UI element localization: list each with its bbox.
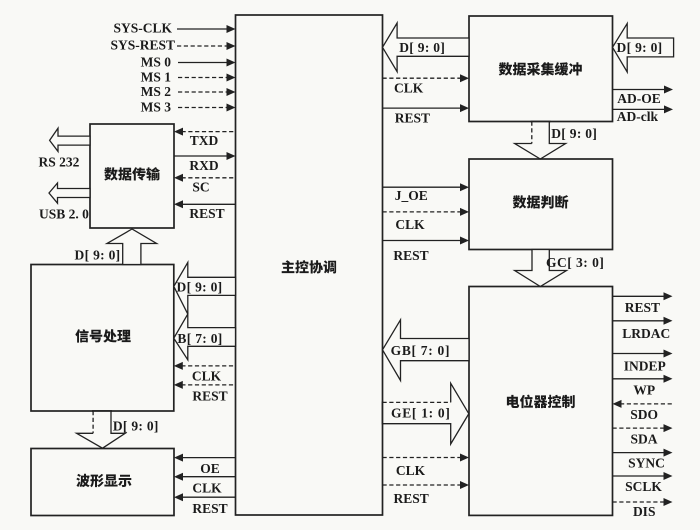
- svg-text:SYS-REST: SYS-REST: [110, 38, 175, 53]
- svg-text:MS 3: MS 3: [141, 100, 172, 115]
- svg-text:GB[ 7: 0]: GB[ 7: 0]: [391, 343, 451, 358]
- svg-text:WP: WP: [633, 383, 655, 398]
- svg-text:SDA: SDA: [630, 432, 657, 447]
- svg-text:J_OE: J_OE: [395, 188, 428, 203]
- svg-text:CLK: CLK: [396, 463, 426, 478]
- svg-text:D[ 9: 0]: D[ 9: 0]: [177, 280, 223, 295]
- svg-text:INDEP: INDEP: [624, 359, 666, 374]
- svg-text:CLK: CLK: [192, 369, 222, 384]
- svg-text:SYS-CLK: SYS-CLK: [113, 21, 172, 36]
- svg-text:REST: REST: [192, 389, 227, 404]
- svg-text:D[ 9: 0]: D[ 9: 0]: [75, 248, 121, 263]
- svg-text:REST: REST: [625, 300, 660, 315]
- svg-text:MS 2: MS 2: [141, 84, 172, 99]
- svg-text:GE[ 1: 0]: GE[ 1: 0]: [391, 406, 451, 421]
- svg-text:D[ 9: 0]: D[ 9: 0]: [399, 40, 445, 55]
- svg-text:D[ 9: 0]: D[ 9: 0]: [617, 40, 663, 55]
- svg-text:DIS: DIS: [633, 504, 656, 519]
- svg-text:CLK: CLK: [192, 481, 222, 496]
- svg-text:OE: OE: [200, 461, 220, 476]
- svg-text:TXD: TXD: [190, 133, 219, 148]
- svg-text:REST: REST: [189, 206, 224, 221]
- svg-text:B[ 7: 0]: B[ 7: 0]: [177, 331, 222, 346]
- svg-text:SDO: SDO: [630, 407, 658, 422]
- svg-text:AD-clk: AD-clk: [617, 109, 659, 124]
- svg-text:RXD: RXD: [189, 158, 218, 173]
- svg-text:D[ 9: 0]: D[ 9: 0]: [551, 126, 597, 141]
- svg-text:SCLK: SCLK: [625, 479, 662, 494]
- svg-text:D[ 9: 0]: D[ 9: 0]: [113, 418, 159, 433]
- svg-text:MS 0: MS 0: [141, 55, 172, 70]
- svg-text:CLK: CLK: [395, 217, 425, 232]
- svg-text:SC: SC: [192, 180, 209, 195]
- svg-text:SYNC: SYNC: [628, 456, 665, 471]
- svg-text:REST: REST: [393, 248, 428, 263]
- svg-text:AD-OE: AD-OE: [617, 91, 661, 106]
- svg-text:LRDAC: LRDAC: [622, 326, 670, 341]
- svg-text:REST: REST: [395, 111, 430, 126]
- svg-text:MS 1: MS 1: [141, 70, 172, 85]
- svg-text:RS 232: RS 232: [39, 154, 80, 169]
- svg-text:GC[ 3: 0]: GC[ 3: 0]: [546, 255, 605, 270]
- svg-text:CLK: CLK: [394, 81, 424, 96]
- svg-text:REST: REST: [192, 501, 227, 516]
- svg-text:USB 2. 0: USB 2. 0: [39, 206, 89, 221]
- svg-text:REST: REST: [394, 491, 429, 506]
